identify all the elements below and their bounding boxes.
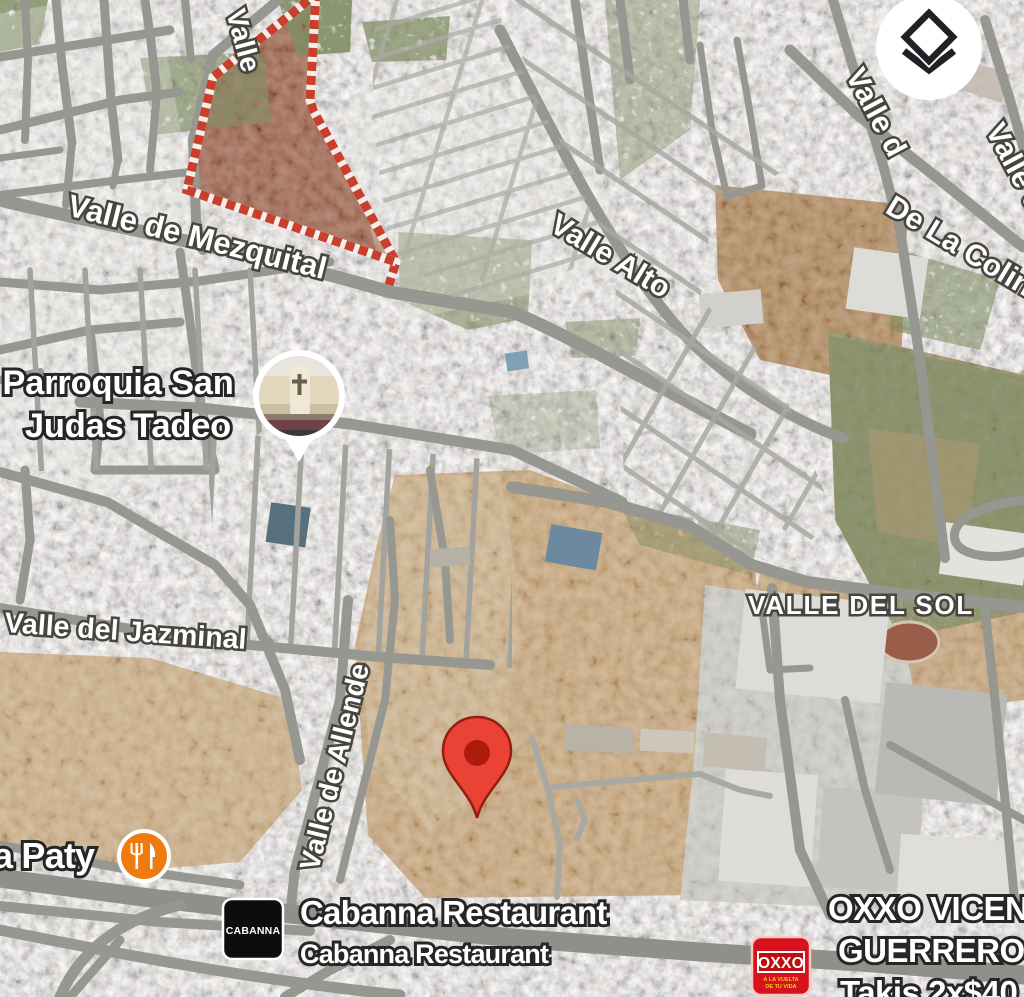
svg-text:Cabanna Restaurant: Cabanna Restaurant xyxy=(300,894,607,931)
svg-text:CABANNA: CABANNA xyxy=(226,925,281,937)
svg-text:Judas Tadeo: Judas Tadeo xyxy=(25,407,231,445)
svg-text:a Paty: a Paty xyxy=(0,835,95,876)
svg-text:OXXO: OXXO xyxy=(758,955,804,972)
svg-text:DE TU VIDA: DE TU VIDA xyxy=(765,984,796,990)
svg-text:OXXO VICENT: OXXO VICENT xyxy=(828,890,1024,927)
svg-text:Takis 2x$40 co: Takis 2x$40 co xyxy=(840,974,1024,997)
svg-text:Parroquia San: Parroquia San xyxy=(2,364,233,402)
svg-text:A LA VUELTA: A LA VUELTA xyxy=(763,977,798,983)
svg-text:Cabanna Restaurant: Cabanna Restaurant xyxy=(300,939,549,969)
svg-text:GUERRERO: GUERRERO xyxy=(838,932,1024,969)
svg-text:VALLE DEL SOL: VALLE DEL SOL xyxy=(748,590,974,620)
